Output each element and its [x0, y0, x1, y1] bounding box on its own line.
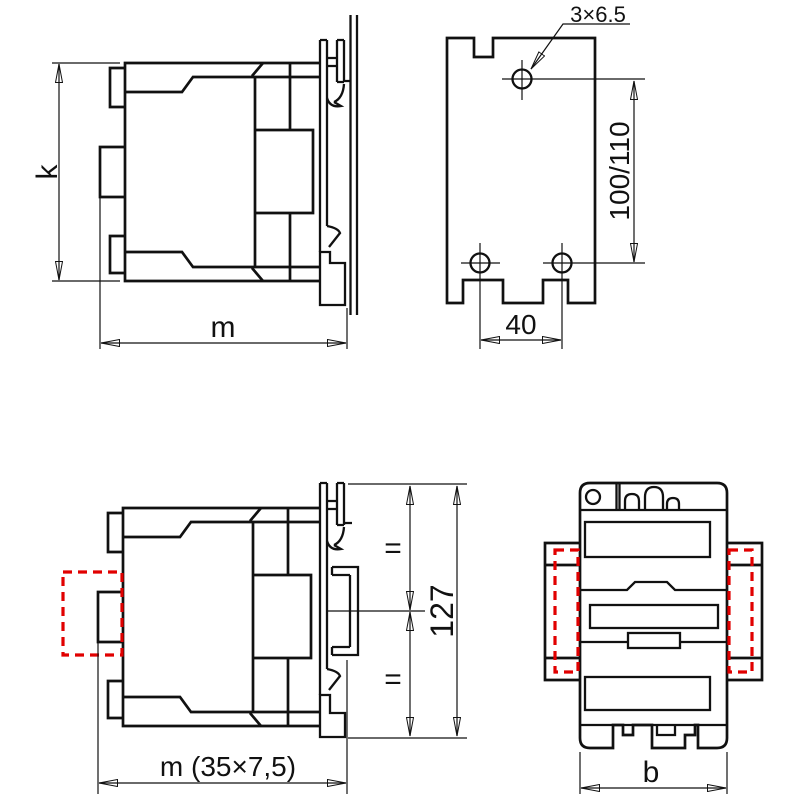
dim-equal-upper-label: =	[384, 532, 402, 565]
dim-100-110: 100/110	[604, 81, 635, 262]
dim-b: b	[580, 752, 727, 794]
mounting-panel	[351, 15, 358, 315]
dim-100-110-label: 100/110	[604, 121, 635, 220]
side-view-panel-mount: k m	[31, 15, 357, 349]
body-outline	[125, 63, 321, 281]
dim-equal-lower-label: =	[384, 663, 402, 696]
din-clip	[320, 40, 351, 305]
hole-callout-label: 3×6.5	[570, 2, 626, 27]
clip-foot	[320, 252, 345, 305]
dim-k: k	[31, 63, 120, 281]
contactor-dimension-drawing: k m 3×6.5 100/110 40	[0, 0, 800, 800]
terminal-protrusions	[100, 68, 125, 273]
dim-127-label: 127	[424, 584, 460, 637]
dim-40-label: 40	[505, 309, 536, 340]
dim-40: 40	[481, 309, 561, 340]
clip-foot	[320, 695, 345, 737]
technical-drawing-page: k m 3×6.5 100/110 40	[0, 0, 800, 800]
front-view: b	[545, 483, 762, 794]
accessory-highlight-right	[729, 550, 752, 672]
clip-spring-hook	[327, 527, 344, 549]
clip-spring-hook	[327, 84, 344, 106]
accessory-highlight-left	[555, 550, 578, 672]
dim-m-rail-label: m (35×7,5)	[160, 751, 296, 782]
clip-barb	[327, 669, 340, 690]
dim-m-label: m	[211, 311, 236, 344]
mounting-plate-view: 3×6.5 100/110 40	[447, 2, 645, 349]
body-outline	[123, 508, 319, 726]
terminal-protrusions	[98, 513, 123, 718]
side-view-din-rail: m (35×7,5) = = 127	[63, 483, 467, 794]
dim-k-label: k	[31, 164, 64, 180]
dim-b-label: b	[643, 756, 660, 789]
clip-barb	[327, 226, 340, 247]
